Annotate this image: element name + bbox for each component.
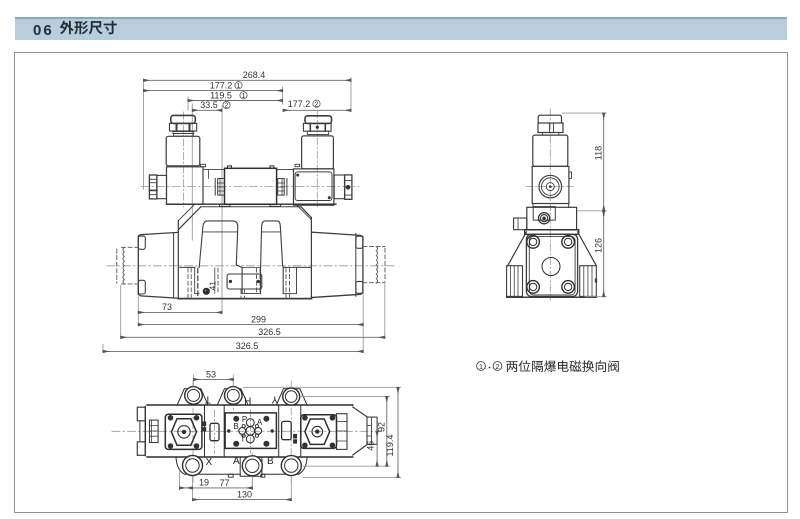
svg-text:2: 2 (225, 103, 229, 110)
svg-text:326.5: 326.5 (258, 327, 281, 337)
svg-text:53: 53 (206, 370, 216, 380)
svg-text:Y: Y (271, 394, 278, 405)
svg-text:T: T (205, 394, 211, 405)
svg-text:299: 299 (251, 314, 266, 324)
svg-text:77: 77 (219, 478, 229, 488)
svg-text:B: B (233, 422, 238, 431)
svg-text:118: 118 (594, 146, 604, 160)
svg-text:A: A (233, 456, 240, 467)
svg-text:H: H (244, 396, 251, 407)
svg-text:92: 92 (377, 422, 387, 432)
svg-text:1: 1 (237, 83, 241, 90)
svg-text:41: 41 (208, 281, 218, 291)
svg-text:2: 2 (495, 362, 499, 371)
svg-text:326.5: 326.5 (236, 341, 259, 351)
svg-text:1: 1 (479, 362, 483, 371)
svg-text:130: 130 (237, 489, 252, 499)
svg-text:1: 1 (242, 93, 246, 100)
svg-text:73: 73 (162, 302, 172, 312)
svg-text:268.4: 268.4 (243, 70, 266, 80)
svg-text:177.2: 177.2 (210, 81, 233, 91)
svg-text:19: 19 (199, 478, 209, 488)
svg-text:126: 126 (594, 238, 604, 253)
svg-text:P: P (242, 415, 247, 424)
svg-text:177.2: 177.2 (288, 99, 311, 109)
svg-text:A: A (257, 418, 263, 427)
svg-text:2: 2 (315, 101, 319, 108)
svg-text:119.4: 119.4 (385, 435, 395, 457)
svg-text:B: B (267, 456, 274, 467)
svg-text:33.5: 33.5 (200, 100, 218, 110)
svg-text:X: X (205, 457, 212, 468)
svg-text:T: T (240, 435, 245, 444)
svg-text:46: 46 (365, 441, 375, 451)
svg-text:119.5: 119.5 (210, 90, 232, 100)
